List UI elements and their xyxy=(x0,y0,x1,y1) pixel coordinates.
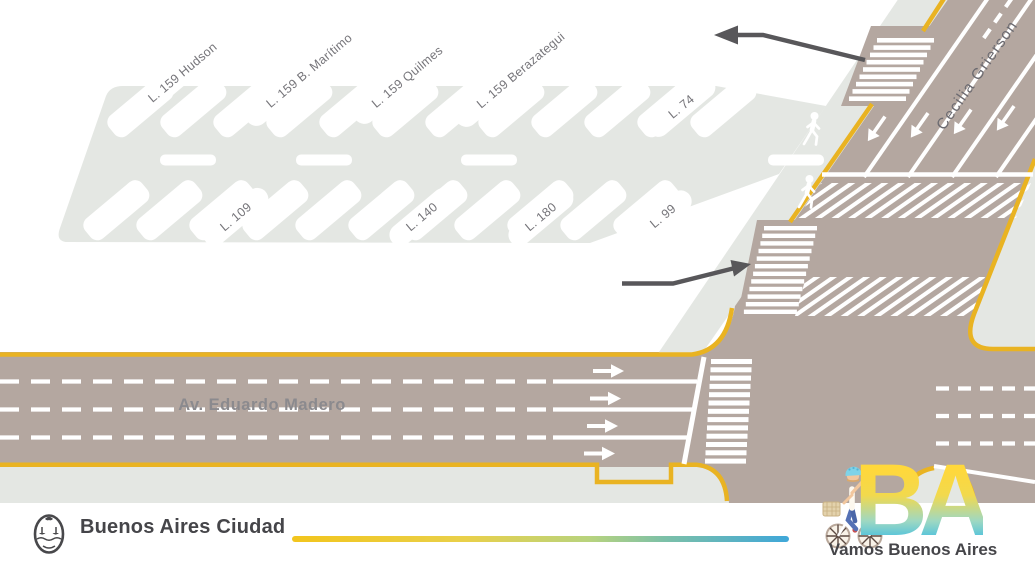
ba-logo: BA xyxy=(854,452,983,548)
metrobus-terminal-diagram: Cecilia Grierson Av. Eduardo Madero L. 1… xyxy=(0,0,1035,572)
buenos-aires-crest-icon xyxy=(26,508,72,560)
footer-slogan: Vamos Buenos Aires xyxy=(811,540,1015,560)
brand-wordmark: Buenos Aires Ciudad xyxy=(80,516,285,539)
street-name-madero: Av. Eduardo Madero xyxy=(178,396,346,414)
footer-gradient-line xyxy=(292,536,789,542)
direction-arrow-exit xyxy=(714,26,865,61)
